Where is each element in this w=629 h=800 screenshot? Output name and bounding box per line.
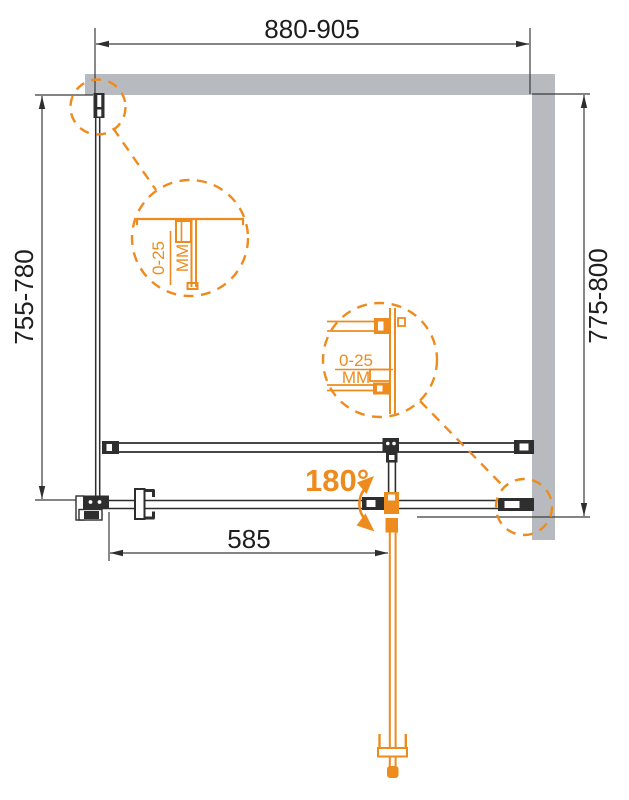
detail-left-profile: 0-25 MM [137, 219, 243, 289]
adjustable-profile [176, 221, 191, 242]
dim-label-left-height: 755-780 [9, 249, 39, 344]
door-handle [135, 489, 155, 519]
arrowhead [357, 514, 375, 532]
left-wall-profile [94, 93, 105, 497]
callout-connector [113, 128, 156, 190]
center-bracket [383, 438, 400, 453]
arrowhead [581, 95, 587, 108]
arrowhead [516, 41, 529, 47]
adjustment-unit: MM [173, 244, 192, 272]
door-open-position: 180° [305, 463, 407, 778]
dim-label-door-width: 585 [227, 524, 270, 554]
arrowhead [39, 96, 45, 109]
top-wall [85, 74, 555, 95]
dimension-left-height: 755-780 [9, 95, 93, 500]
shower-door-plan-drawing: 880-905 755-780 775-800 585 [0, 0, 629, 800]
open-door-bottom-cap [387, 766, 399, 778]
callout-connector [420, 401, 505, 488]
arrowhead [581, 503, 587, 516]
right-wall [532, 95, 555, 540]
dim-label-right-height: 775-800 [583, 248, 613, 343]
arrowhead [96, 41, 109, 47]
swing-angle-label: 180° [305, 463, 369, 498]
arrowhead [375, 550, 388, 556]
adjustment-range: 0-25 [149, 241, 168, 275]
door-end-block-left [83, 496, 109, 510]
dim-label-top-width: 880-905 [264, 14, 359, 44]
arrowhead [110, 550, 123, 556]
open-door-handle [378, 734, 407, 757]
adjustment-label-left: 0-25 MM [149, 231, 192, 285]
arrowhead [39, 486, 45, 499]
detail-right-profile: 0-25 MM [327, 308, 405, 414]
